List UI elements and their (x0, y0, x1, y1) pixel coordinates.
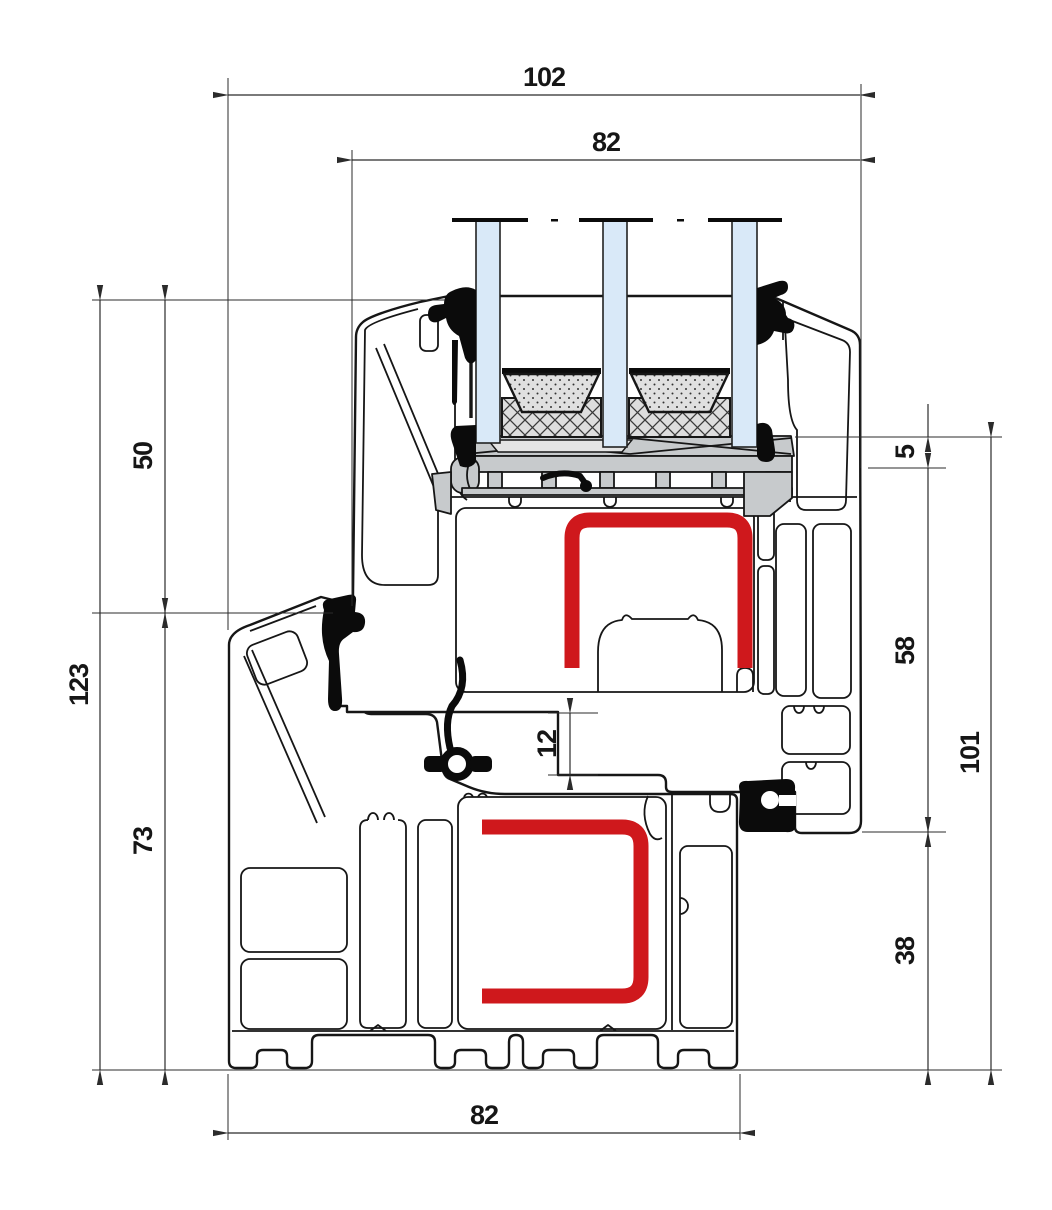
dimension-label: 73 (128, 826, 158, 855)
dimension-label: 58 (890, 636, 920, 665)
dimension-label: 38 (890, 936, 920, 965)
dimension-overall-width: 102 (228, 62, 860, 95)
dimension-frame-width: 82 (228, 1100, 740, 1133)
spacer-desiccant-left (504, 374, 599, 412)
dimension-label: 101 (955, 731, 985, 774)
technical-drawing-page: 102 82 50 123 73 5 58 38 (0, 0, 1052, 1210)
glass-edge-caps (452, 218, 782, 222)
glass-pane-1 (476, 221, 500, 443)
dimension-label: 82 (470, 1100, 498, 1130)
dimension-label: 5 (890, 444, 920, 459)
bridge-left-support (432, 472, 451, 514)
dimension-total-height: 123 (64, 300, 100, 1070)
dimension-glazing-width: 82 (352, 127, 860, 160)
frame-sash-gasket-right (739, 779, 796, 832)
dimension-glass-recess: 5 (890, 404, 928, 459)
glass-pane-2 (603, 221, 627, 447)
dimension-label: 12 (532, 730, 562, 758)
dimension-label: 123 (64, 663, 94, 706)
dimension-label: 102 (523, 62, 565, 92)
dimension-sash-face-height: 58 (890, 468, 928, 832)
dimension-frame-height: 73 (128, 613, 165, 1070)
bridge-rail (470, 456, 792, 472)
spacer-desiccant-right (631, 374, 728, 412)
glass-pane-3 (732, 221, 757, 447)
bridge-base-rail (462, 488, 792, 495)
dimension-upper-height: 50 (128, 300, 165, 613)
dimension-lower-height: 38 (890, 832, 928, 1070)
dimension-label: 50 (128, 442, 158, 470)
dimension-overall-height-right: 101 (955, 437, 991, 1070)
profile-section-drawing: 102 82 50 123 73 5 58 38 (0, 0, 1052, 1210)
dimension-label: 82 (592, 127, 620, 157)
